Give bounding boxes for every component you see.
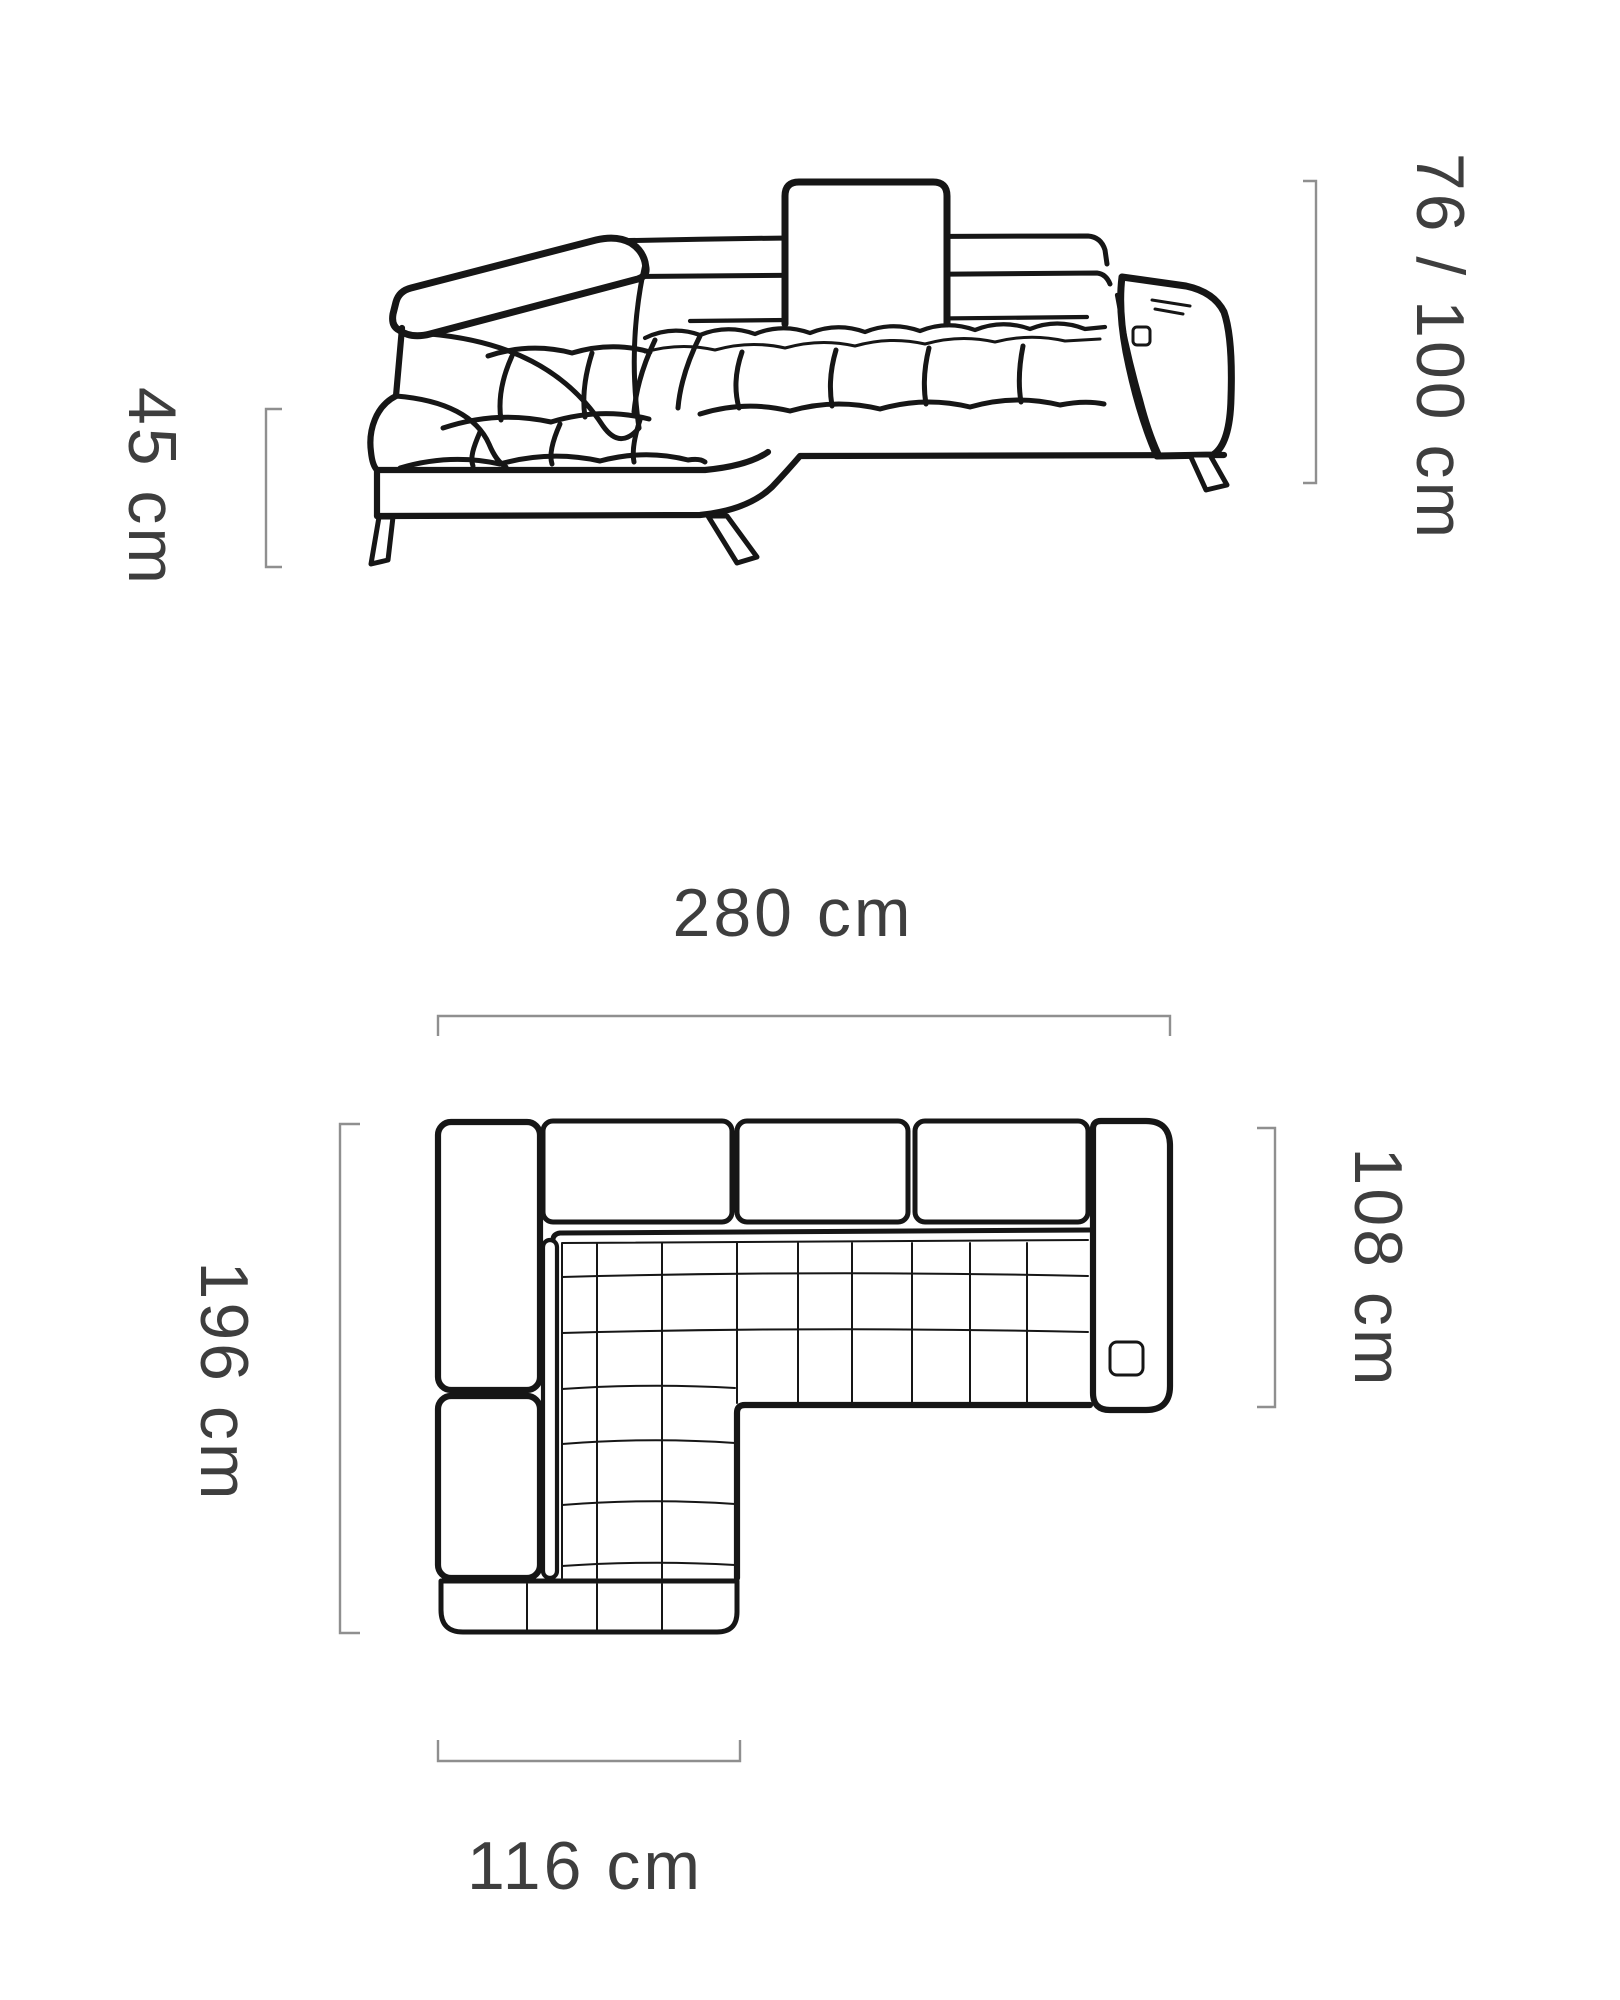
total-width-dimension-label: 280 cm xyxy=(673,879,914,947)
left-armrest-bottom xyxy=(438,1396,540,1578)
seat-depth-bracket xyxy=(1257,1128,1275,1407)
chaise-width-bracket xyxy=(438,1740,740,1761)
front-center-leg xyxy=(708,516,757,563)
dimension-diagram xyxy=(0,0,1620,2000)
seat-cushions xyxy=(634,324,1105,415)
seat-boundary xyxy=(553,1230,1090,1578)
left-armrest xyxy=(370,238,646,470)
headrest xyxy=(785,182,947,324)
sofa-dimension-diagram-page: 76 / 100 cm 45 cm 280 cm 196 cm 108 cm 1… xyxy=(0,0,1620,2000)
sofa-top-view-drawing xyxy=(438,1121,1170,1632)
height-bracket xyxy=(1303,181,1316,483)
height-dimension-label: 76 / 100 cm xyxy=(1406,153,1474,541)
front-left-leg xyxy=(371,517,393,564)
back-cushion-1 xyxy=(543,1121,732,1222)
quilt-grid xyxy=(527,1243,1088,1630)
total-depth-dimension-label: 196 cm xyxy=(190,1262,258,1503)
right-armrest xyxy=(1117,277,1231,456)
back-cushion-3 xyxy=(915,1121,1088,1222)
front-right-leg xyxy=(1190,455,1227,490)
chaise-width-dimension-label: 116 cm xyxy=(467,1832,703,1900)
sofa-front-view-drawing xyxy=(370,182,1231,564)
chaise-front-strip xyxy=(441,1581,737,1632)
seat-height-dimension-label: 45 cm xyxy=(118,387,186,587)
total-depth-bracket xyxy=(340,1124,360,1633)
back-cushion-2 xyxy=(737,1121,908,1222)
chaise-inner-edge xyxy=(543,1240,557,1578)
seat-depth-dimension-label: 108 cm xyxy=(1344,1148,1412,1389)
total-width-bracket xyxy=(438,1016,1170,1036)
left-armrest-top xyxy=(438,1122,540,1390)
seat-height-bracket xyxy=(266,409,282,567)
right-armrest-plan xyxy=(1093,1121,1170,1410)
